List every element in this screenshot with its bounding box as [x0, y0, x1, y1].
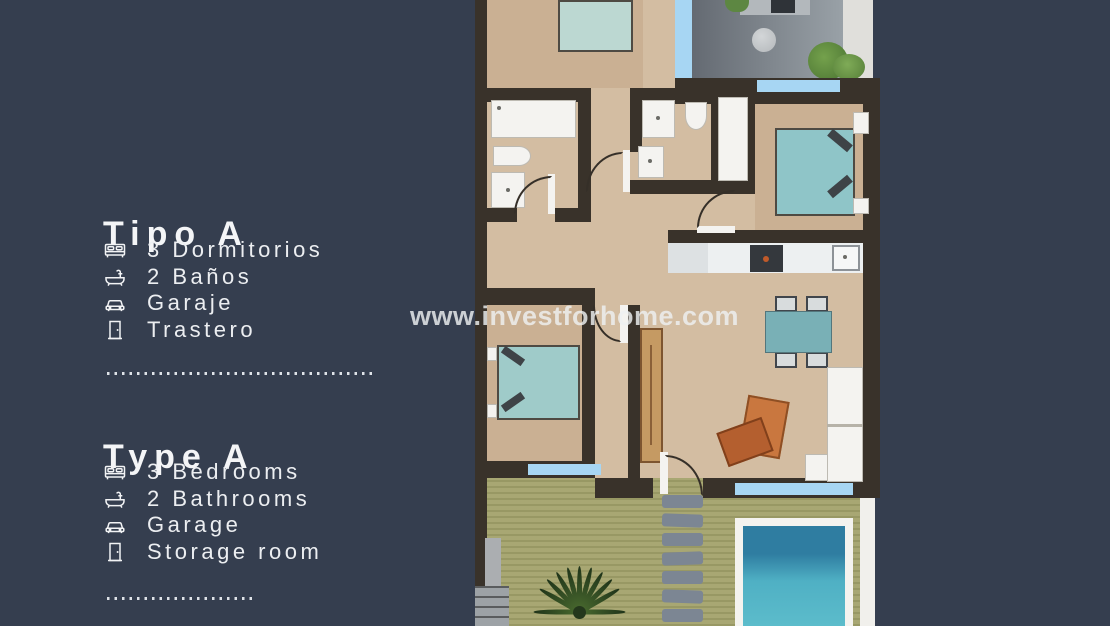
toilet: [493, 146, 531, 166]
garden-path: [485, 538, 501, 590]
dining-chair: [775, 296, 797, 312]
bathtub: [491, 100, 576, 138]
bathtub-icon: [103, 487, 127, 511]
property-poster: Tipo A 3 Dormitorios 2 Baños: [0, 0, 1110, 626]
spec-label: Garaje: [147, 290, 234, 316]
stepping-stone: [662, 551, 703, 565]
wardrobe-door-line: [650, 345, 652, 445]
list-item: Storage room: [103, 539, 322, 566]
stepping-stone: [662, 495, 703, 508]
bathtub-drain: [497, 106, 501, 110]
fridge: [668, 243, 708, 273]
door-leaf: [623, 150, 630, 192]
wall: [711, 92, 718, 187]
stepping-stone: [662, 609, 703, 622]
spec-label: Storage room: [147, 539, 322, 565]
pool: [743, 526, 845, 626]
spec-label: 2 Baños: [147, 264, 252, 290]
terrace-grill: [771, 0, 795, 13]
dotted-divider: [107, 372, 373, 375]
terrace-plant: [833, 54, 865, 80]
terrace-table: [752, 28, 776, 52]
wall: [578, 88, 591, 222]
garden-steps: [475, 586, 509, 626]
bathtub-icon: [103, 265, 127, 289]
nightstand: [487, 347, 497, 361]
dining-table: [765, 311, 832, 353]
watermark: www.investforhome.com: [410, 301, 739, 332]
stove-knob: [763, 256, 769, 262]
wall: [630, 88, 642, 152]
list-item: 2 Baños: [103, 264, 323, 291]
shower-drain: [506, 188, 510, 192]
list-item: Trastero: [103, 317, 323, 344]
spec-label: 2 Bathrooms: [147, 486, 310, 512]
spec-label: Trastero: [147, 317, 256, 343]
stepping-stone: [662, 533, 703, 546]
bed: [558, 0, 633, 52]
car-icon: [103, 513, 127, 537]
wall: [595, 478, 653, 498]
wall: [863, 78, 880, 498]
dining-chair: [806, 296, 828, 312]
terrace-window: [675, 0, 692, 78]
wall: [630, 180, 715, 194]
door-icon: [103, 318, 127, 342]
list-item: Garaje: [103, 290, 323, 317]
list-item: 2 Bathrooms: [103, 486, 322, 513]
list-item: 3 Dormitorios: [103, 237, 323, 264]
wardrobe-divider: [827, 424, 863, 427]
spec-list-es: 3 Dormitorios 2 Baños Garaje: [103, 237, 323, 343]
car-icon: [103, 291, 127, 315]
nightstand: [853, 198, 869, 214]
bed-icon: [103, 238, 127, 262]
nightstand: [487, 404, 497, 418]
spec-label: Garage: [147, 512, 241, 538]
list-item: Garage: [103, 512, 322, 539]
sink-drain: [648, 159, 652, 163]
wall: [555, 208, 591, 222]
wall: [748, 92, 755, 187]
toilet: [685, 102, 707, 130]
spec-label: 3 Dormitorios: [147, 237, 323, 263]
window: [528, 464, 601, 475]
window: [735, 483, 853, 495]
door-icon: [103, 540, 127, 564]
dining-chair: [775, 352, 797, 368]
palm-tree: [515, 552, 645, 626]
sink-drain: [843, 255, 847, 259]
bed-icon: [103, 460, 127, 484]
dining-chair: [806, 352, 828, 368]
wall: [475, 208, 517, 222]
window: [757, 80, 840, 92]
spec-list-en: 3 Bedrooms 2 Bathrooms Garage: [103, 459, 322, 565]
stepping-stone: [662, 589, 703, 603]
stepping-stone: [662, 513, 703, 527]
garden-fence: [860, 498, 875, 626]
shower-drain: [656, 116, 660, 120]
stepping-stone: [662, 571, 703, 584]
list-item: 3 Bedrooms: [103, 459, 322, 486]
spec-label: 3 Bedrooms: [147, 459, 301, 485]
dotted-divider: [107, 597, 257, 600]
closet: [718, 97, 748, 181]
nightstand: [853, 112, 869, 134]
